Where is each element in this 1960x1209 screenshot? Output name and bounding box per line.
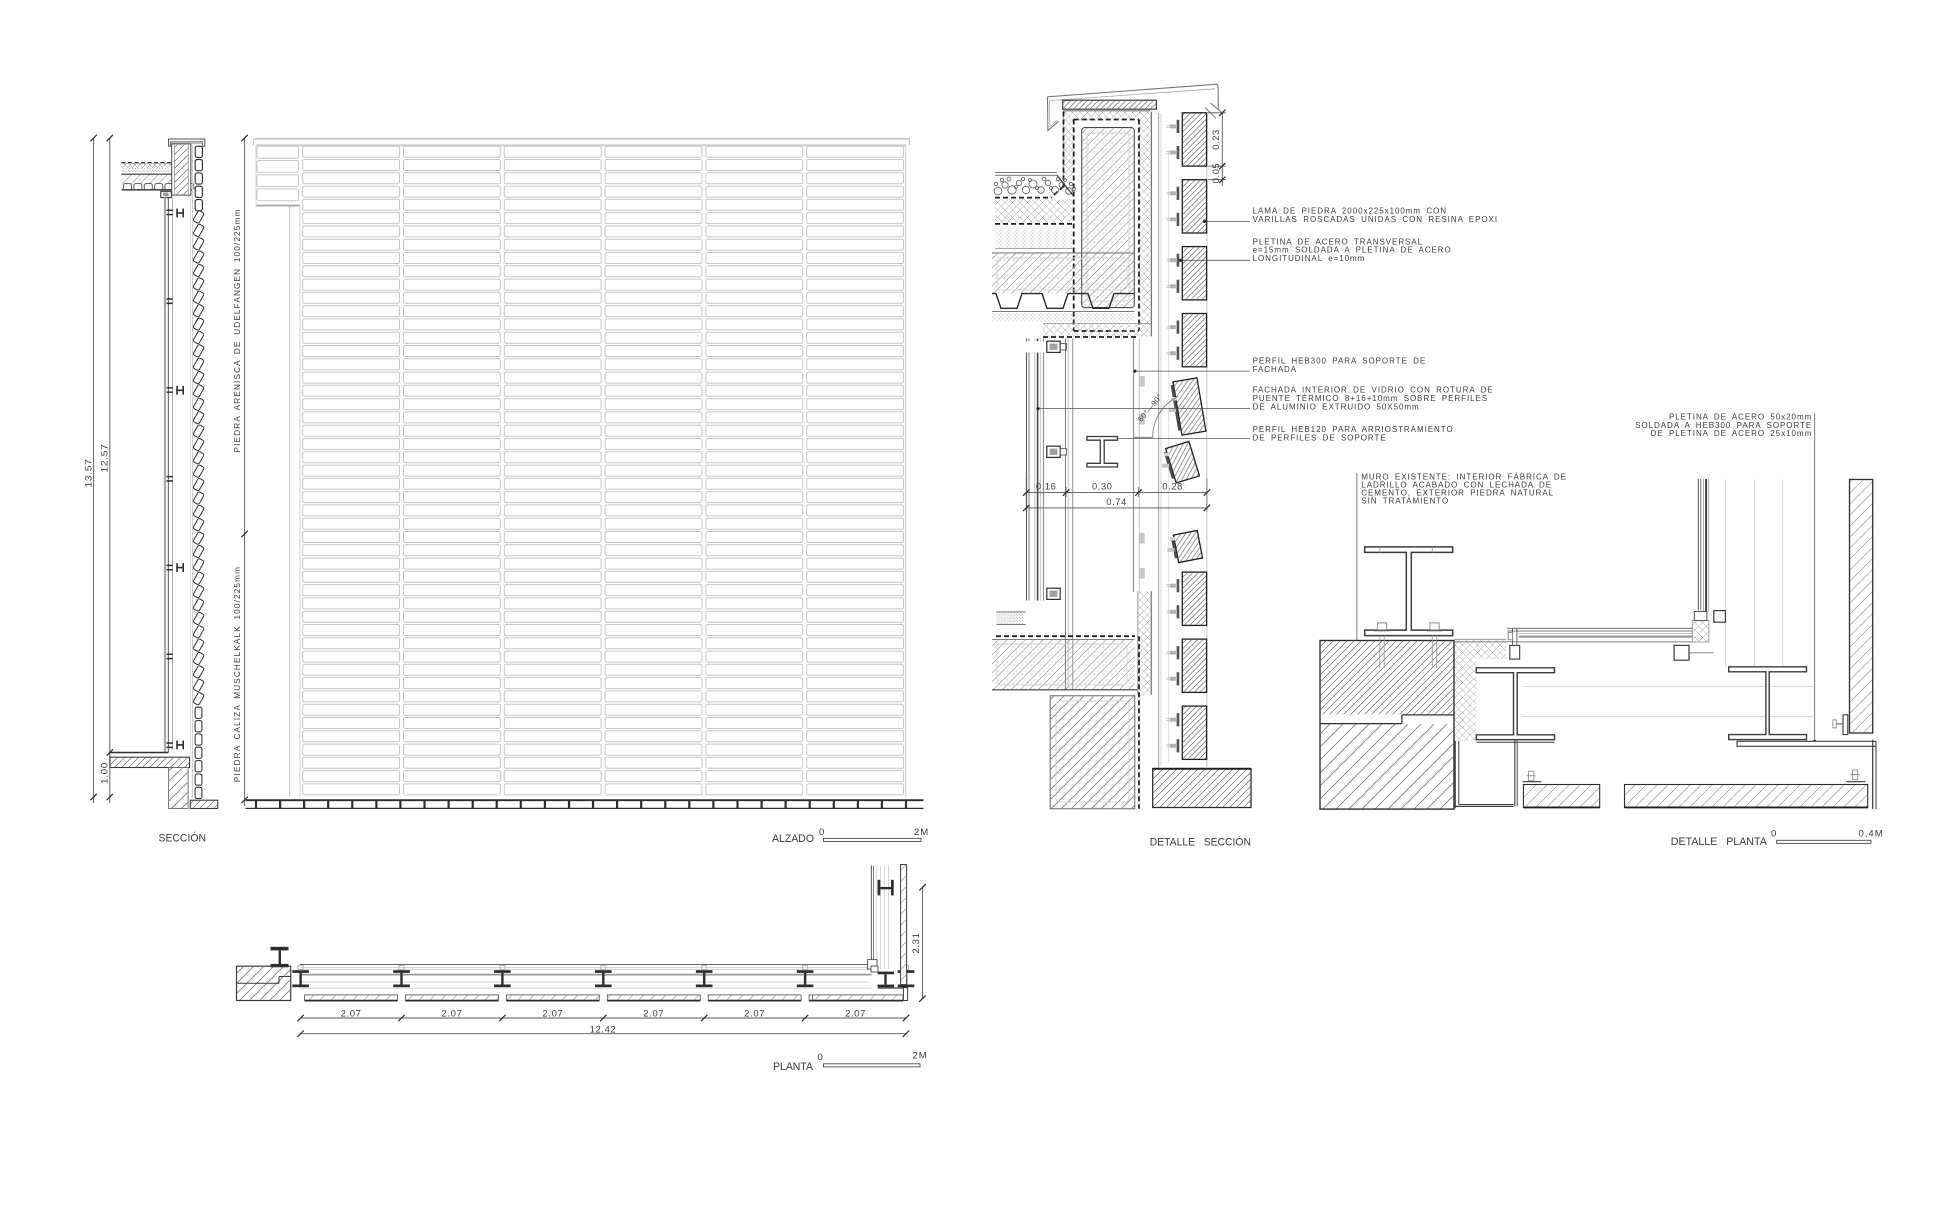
- svg-text:13.57: 13.57: [84, 459, 94, 488]
- svg-text:2.07: 2.07: [442, 1009, 463, 1019]
- svg-text:2.31: 2.31: [911, 933, 921, 954]
- svg-text:2.07: 2.07: [341, 1009, 362, 1019]
- svg-text:0: 0: [1771, 829, 1777, 840]
- svg-text:0,4M: 0,4M: [1859, 829, 1884, 840]
- svg-text:DE PLETINA DE ACERO 25x10m: DE PLETINA DE ACERO 25x10mm: [1651, 429, 1813, 438]
- svg-text:SECCIÓN: SECCIÓN: [159, 832, 207, 845]
- svg-text:2.07: 2.07: [845, 1009, 866, 1019]
- svg-text:2M: 2M: [913, 1051, 928, 1062]
- svg-text:PIEDRA CALIZA MUSCHELKALK 1: PIEDRA CALIZA MUSCHELKALK 100/225mm: [233, 566, 242, 782]
- svg-text:DETALLE PLANTA: DETALLE PLANTA: [1671, 836, 1768, 848]
- svg-text:0.74: 0.74: [1106, 497, 1127, 507]
- svg-text:SIN TRATAMIENTO: SIN TRATAMIENTO: [1361, 497, 1449, 506]
- svg-text:PIEDRA ARENISCA DE UDELFANG: PIEDRA ARENISCA DE UDELFANGEN 100/225mm: [233, 209, 242, 453]
- svg-text:0: 0: [819, 827, 825, 838]
- svg-text:1.00: 1.00: [100, 762, 110, 784]
- svg-text:PLANTA: PLANTA: [773, 1061, 814, 1073]
- svg-text:VARILLAS ROSCADAS UNIDAS CO: VARILLAS ROSCADAS UNIDAS CON RESINA EPOX…: [1253, 215, 1498, 224]
- svg-text:0.23: 0.23: [1211, 129, 1221, 150]
- svg-text:2M: 2M: [914, 827, 929, 838]
- svg-text:DE PERFILES DE SOPORTE: DE PERFILES DE SOPORTE: [1253, 434, 1387, 443]
- svg-text:0.28: 0.28: [1162, 482, 1183, 492]
- svg-text:0: 0: [818, 1052, 824, 1063]
- svg-text:ALZADO: ALZADO: [772, 833, 814, 845]
- svg-text:0.30: 0.30: [1092, 482, 1113, 492]
- svg-text:2.07: 2.07: [744, 1009, 765, 1019]
- svg-text:LONGITUDINAL e=10mm: LONGITUDINAL e=10mm: [1253, 254, 1366, 263]
- svg-text:DETALLE SECCIÓN: DETALLE SECCIÓN: [1150, 836, 1251, 849]
- svg-text:0.05: 0.05: [1211, 163, 1221, 184]
- svg-text:2.07: 2.07: [542, 1009, 563, 1019]
- svg-text:0.16: 0.16: [1036, 482, 1057, 492]
- svg-text:FACHADA: FACHADA: [1253, 365, 1297, 374]
- svg-text:DE ALUMINIO EXTRUIDO 50X50m: DE ALUMINIO EXTRUIDO 50X50mm: [1253, 403, 1420, 412]
- svg-text:2.07: 2.07: [643, 1009, 664, 1019]
- svg-text:12.57: 12.57: [100, 444, 110, 473]
- svg-text:12.42: 12.42: [590, 1024, 617, 1034]
